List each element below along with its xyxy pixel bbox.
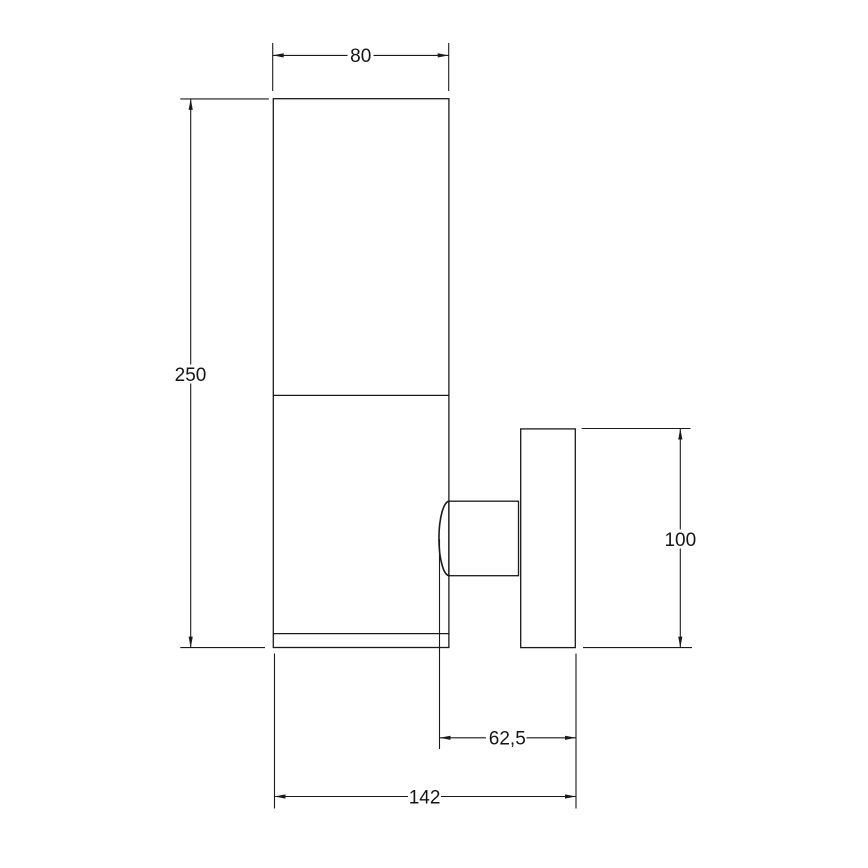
svg-text:62,5: 62,5 xyxy=(489,729,526,750)
svg-text:250: 250 xyxy=(175,365,207,386)
svg-text:100: 100 xyxy=(664,530,696,551)
svg-text:142: 142 xyxy=(409,787,441,808)
svg-text:80: 80 xyxy=(350,46,371,67)
